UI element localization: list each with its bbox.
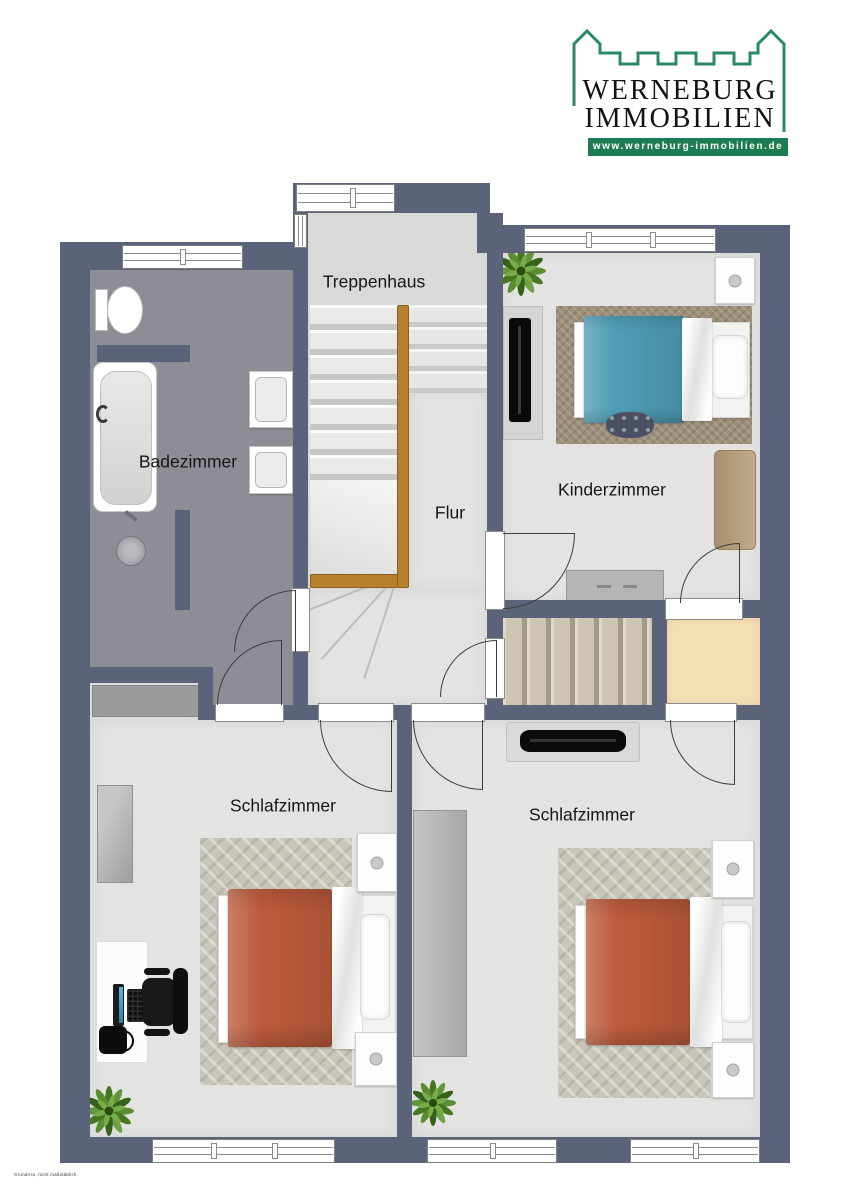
stairs-up-upper-treads [409, 305, 487, 393]
sink [249, 371, 293, 428]
nightstand [712, 840, 754, 898]
wall [397, 705, 412, 1137]
stair-handrail [397, 305, 409, 588]
sink [249, 446, 293, 494]
room-label-badezimmer: Badezimmer [139, 452, 237, 473]
room-label-schlafzimmer-right: Schlafzimmer [529, 805, 635, 826]
chair-armrest [144, 1029, 170, 1036]
nightstand-knob [370, 1053, 383, 1066]
window-mullion [490, 1143, 496, 1160]
dresser-handle [597, 585, 611, 588]
room-label-treppenhaus: Treppenhaus [323, 272, 425, 293]
pouf [606, 412, 654, 438]
sink-basin [255, 452, 287, 488]
plant-icon [410, 1080, 456, 1126]
nightstand-knob [729, 274, 742, 287]
door-opening [215, 703, 284, 722]
window [524, 228, 716, 252]
dresser-handle [623, 585, 637, 588]
wall [293, 270, 308, 720]
window-mullion [693, 1143, 699, 1160]
tv [520, 730, 626, 752]
tv-screen-line [530, 739, 616, 742]
wall [487, 213, 503, 705]
room-floor-abstellraum [667, 618, 760, 705]
blanket-folds [228, 889, 332, 1047]
plant-icon [84, 1086, 134, 1136]
company-logo: WERNEBURG IMMOBILIEN www.werneburg-immob… [560, 22, 800, 162]
disclaimer-footnote: Grundriss, nicht maßstäblich [14, 1172, 77, 1177]
nightstand-knob [371, 856, 384, 869]
shower-head-disc [116, 536, 146, 566]
nightstand-knob [727, 1064, 740, 1077]
bed-blanket [228, 889, 332, 1047]
stair-wood-edge [310, 574, 398, 588]
plant-icon [496, 246, 546, 296]
nightstand-knob [727, 863, 740, 876]
pillow [712, 335, 748, 399]
window-mullion [350, 188, 356, 208]
tv [509, 318, 531, 422]
chair-seat [142, 978, 176, 1026]
window-glass [298, 193, 393, 203]
bed-sheet [332, 887, 362, 1049]
window [152, 1139, 335, 1163]
window-mullion [180, 249, 186, 266]
chair-back [173, 968, 188, 1034]
tv-screen-line [518, 326, 521, 414]
window [296, 184, 395, 212]
bed-sheet [690, 897, 722, 1047]
blanket-folds [586, 899, 690, 1045]
dresser [566, 570, 664, 602]
bag [99, 1026, 127, 1054]
stairs-down [503, 618, 652, 705]
wall [198, 683, 213, 720]
wall [175, 510, 190, 610]
logo-name-line2: IMMOBILIEN [580, 106, 780, 132]
bathtub-faucet [96, 405, 110, 423]
window [122, 245, 243, 269]
sink-basin [255, 377, 287, 422]
window-glass [526, 236, 714, 244]
window-glass [154, 1147, 333, 1155]
door-opening [485, 531, 505, 610]
shower-head [112, 512, 152, 568]
monitor-screen [119, 987, 123, 1023]
toilet-bowl [107, 286, 143, 334]
nightstand [355, 1032, 397, 1086]
wall-mirror [97, 785, 133, 883]
window [427, 1139, 557, 1163]
window-mullion [650, 232, 656, 249]
room-label-kinderzimmer: Kinderzimmer [558, 480, 666, 501]
wall [97, 345, 190, 362]
room-label-flur: Flur [435, 503, 465, 524]
wall [760, 225, 790, 1163]
stairs-up-flight [310, 305, 398, 480]
pillow [721, 921, 751, 1023]
wall [85, 667, 213, 683]
window-mullion [211, 1143, 217, 1160]
office-chair [142, 966, 188, 1038]
bathtub [93, 362, 157, 512]
bed-sheet [682, 318, 712, 421]
logo-website: www.werneburg-immobilien.de [588, 138, 788, 156]
window [630, 1139, 760, 1163]
window-glass [298, 216, 303, 246]
pillow [360, 914, 390, 1020]
desk [714, 450, 756, 550]
floorplan-page: WERNEBURG IMMOBILIEN www.werneburg-immob… [0, 0, 848, 1200]
toilet [95, 286, 143, 334]
computer-monitor [113, 984, 124, 1026]
chair-armrest [144, 968, 170, 975]
bed-blanket [586, 899, 690, 1045]
wardrobe [413, 810, 467, 1057]
room-label-schlafzimmer-left: Schlafzimmer [230, 796, 336, 817]
blanket-folds [584, 316, 684, 423]
wall [652, 618, 667, 705]
logo-name-line1: WERNEBURG [580, 78, 780, 104]
window-mullion [272, 1143, 278, 1160]
stairs-winder [310, 480, 398, 574]
bed-blanket [584, 316, 684, 423]
window [294, 214, 307, 248]
stair-landing [409, 390, 487, 590]
window-mullion [586, 232, 592, 249]
wardrobe [92, 685, 202, 717]
nightstand [357, 833, 397, 892]
bathtub-basin [100, 371, 152, 505]
wall [60, 242, 90, 1163]
nightstand [715, 257, 755, 304]
nightstand [712, 1042, 754, 1098]
